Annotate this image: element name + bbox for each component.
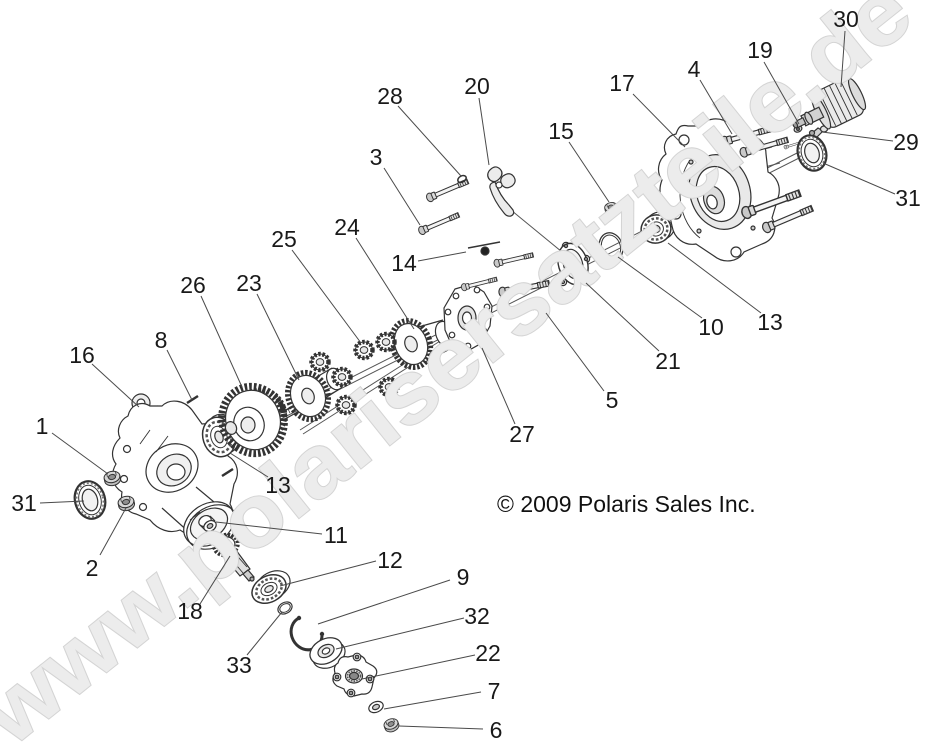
part-label-16: 16: [69, 342, 95, 368]
part-label-23: 23: [236, 270, 262, 296]
part-label-29: 29: [893, 129, 919, 155]
part-label-15: 15: [548, 118, 574, 144]
part-label-17: 17: [609, 70, 635, 96]
part-label-22: 22: [475, 640, 501, 666]
part-label-25: 25: [271, 226, 297, 252]
leader-line-part-label-33: [247, 612, 282, 655]
part-6-nut: [383, 717, 401, 734]
part-label-1: 1: [36, 413, 49, 439]
part-label-9: 9: [457, 564, 470, 590]
leader-line-part-label-20: [479, 98, 489, 165]
part-label-30: 30: [833, 6, 859, 32]
part-label-28: 28: [377, 83, 403, 109]
part-label-26: 26: [180, 272, 206, 298]
leader-line-part-label-2: [100, 508, 126, 555]
part-33-o-ring: [276, 599, 294, 616]
leader-line-part-label-25: [292, 250, 361, 343]
part-label-18: 18: [177, 598, 203, 624]
part-label-6: 6: [490, 717, 503, 743]
part-label-8: 8: [155, 327, 168, 353]
copyright-text: © 2009 Polaris Sales Inc.: [497, 491, 756, 517]
leader-line-part-label-5: [546, 313, 604, 391]
part-label-14: 14: [391, 250, 417, 276]
diagram-canvas: www.polarisersatzteile.de 12345678910111…: [0, 0, 931, 752]
part-label-13-right: 13: [757, 309, 783, 335]
leader-line-part-label-28: [398, 106, 461, 176]
part-label-31-top-right: 31: [895, 185, 921, 211]
part-label-21: 21: [655, 348, 681, 374]
part-7-washer: [367, 699, 385, 715]
part-label-4: 4: [688, 56, 701, 82]
leader-line-part-label-21: [586, 283, 659, 351]
leader-line-part-label-7: [384, 692, 481, 709]
leader-line-part-label-9: [318, 580, 450, 624]
part-label-2: 2: [86, 555, 99, 581]
leader-line-part-label-10: [618, 257, 702, 318]
leader-line-part-label-6: [399, 726, 483, 729]
leader-line-part-label-22: [362, 655, 475, 679]
part-label-31-left: 31: [11, 490, 37, 516]
leader-line-part-label-3: [384, 168, 420, 225]
part-label-3: 3: [370, 144, 383, 170]
part-label-20: 20: [464, 73, 490, 99]
part-20-shift-fork: [488, 167, 515, 216]
leader-line-part-label-14: [418, 252, 466, 261]
part-label-24: 24: [334, 214, 360, 240]
part-label-10: 10: [698, 314, 724, 340]
leader-line-part-label-23: [257, 294, 299, 380]
part-3-bolts: [417, 177, 469, 235]
part-label-11: 11: [324, 522, 348, 548]
part-label-27: 27: [509, 421, 535, 447]
part-14-pin: [468, 242, 500, 255]
leader-line-part-label-31-top-right: [823, 163, 895, 194]
watermark: www.polarisersatzteile.de: [0, 0, 929, 752]
part-label-19: 19: [747, 37, 773, 63]
exploded-parts-diagram: www.polarisersatzteile.de 12345678910111…: [0, 0, 931, 752]
part-31-seal-left: [71, 478, 110, 522]
leader-line-part-label-26: [201, 296, 242, 387]
part-label-12: 12: [377, 547, 403, 573]
leader-line-part-label-8: [167, 350, 192, 400]
part-label-32: 32: [464, 603, 490, 629]
leader-line-part-label-32: [336, 618, 464, 649]
leader-line-part-label-1: [52, 433, 108, 474]
part-label-13-left: 13: [265, 472, 291, 498]
leader-line-part-label-29: [822, 132, 893, 141]
leader-line-part-label-12: [280, 561, 376, 586]
leader-line-part-label-16: [92, 364, 139, 407]
part-label-33: 33: [226, 652, 252, 678]
part-22-output-yoke: [333, 653, 377, 697]
part-label-5: 5: [606, 387, 619, 413]
part-label-7: 7: [488, 678, 501, 704]
